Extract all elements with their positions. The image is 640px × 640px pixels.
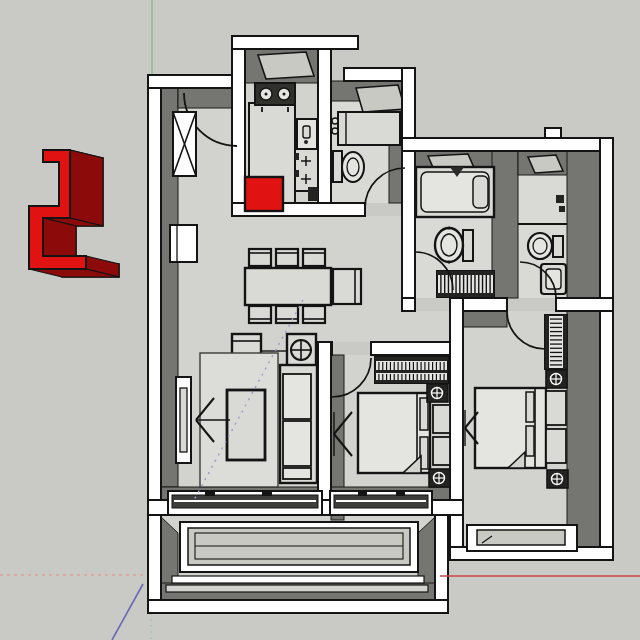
walls-part (435, 515, 448, 613)
master-nightstands-part (433, 405, 450, 433)
smallbath-washer[interactable] (332, 112, 400, 145)
dining-set-part (249, 306, 271, 323)
rightbed-closet-part (563, 315, 567, 369)
tv-living-part (180, 388, 187, 452)
sliding-door-master-part (396, 491, 405, 496)
walls-part (148, 75, 245, 88)
walls-part (402, 151, 415, 311)
smallbath-toilet-part (342, 152, 364, 182)
smallbath-washer-part (332, 128, 338, 134)
dining-set-part (276, 306, 298, 323)
rightbed-nightstands-part (546, 391, 566, 425)
walls-part (148, 600, 448, 613)
bath2-radiator[interactable] (437, 271, 494, 297)
bath2-toilet-part (435, 228, 463, 262)
kitchen-sink-part (304, 140, 308, 144)
smallbath-washer-part (332, 118, 338, 124)
kitchen-sink-part (303, 126, 310, 138)
bath2-tub-part (473, 176, 488, 208)
rightbath-shelf-part (559, 206, 565, 212)
rightbath-toilet[interactable] (528, 233, 563, 259)
wall-inner-faces-part (492, 151, 518, 298)
balcony-window[interactable] (180, 522, 418, 572)
coffee-table-part (227, 390, 265, 460)
kitchen-hob[interactable] (295, 149, 318, 191)
sofa-part (283, 468, 311, 479)
sofa-part (283, 374, 311, 419)
wall-inner-faces-part (463, 311, 507, 327)
rightbed-nightstands-part (546, 429, 566, 463)
kitchen-stove-part (283, 93, 286, 96)
rightbath-sink[interactable] (541, 264, 566, 294)
kitchen-bin[interactable] (308, 187, 318, 201)
app-canvas[interactable] (0, 0, 640, 640)
master-wardrobe-part (375, 357, 448, 361)
dining-set-part (276, 249, 298, 266)
rightbed-bed-part (526, 426, 534, 456)
rightbed-bay-window[interactable] (467, 525, 577, 551)
walls-part (600, 138, 613, 560)
kitchen-hob-part (295, 153, 299, 160)
kitchen-red-box-part (245, 177, 283, 211)
master-wardrobe-part (375, 380, 448, 383)
rightbath-shelf-part (556, 195, 564, 203)
bath2-tub[interactable] (416, 167, 494, 217)
smallbath-toilet-part (333, 151, 342, 182)
sliding-door-living-part (205, 491, 215, 496)
master-wardrobe-part (375, 370, 448, 373)
bath2-toilet[interactable] (435, 226, 473, 263)
bath2-toilet-part (447, 226, 450, 229)
rightbed-closet[interactable] (545, 315, 567, 369)
balcony-sill-part (166, 585, 428, 592)
walls-part (232, 36, 245, 216)
kitchen-red-box[interactable] (245, 177, 283, 211)
walls-part (556, 298, 613, 311)
rightbed-bed[interactable] (475, 388, 546, 468)
kitchen-hob-part (295, 170, 299, 177)
master-bed[interactable] (358, 393, 430, 473)
smallbath-toilet[interactable] (333, 151, 364, 182)
entry-cabinet[interactable] (170, 225, 197, 262)
high-windows-part (528, 155, 563, 173)
rightbath-toilet-part (528, 233, 552, 259)
dining-set-part (333, 269, 361, 304)
red-3d-component-part (70, 150, 103, 226)
bath2-radiator-part (437, 293, 494, 297)
dining-set-part (303, 306, 325, 323)
high-windows-part (258, 52, 314, 79)
balcony-sill-part (172, 576, 424, 583)
model-viewport[interactable] (0, 0, 640, 640)
walls-part (318, 49, 331, 216)
kitchen-stove-part (265, 93, 268, 96)
kitchen-sink[interactable] (297, 119, 317, 149)
bath2-toilet-part (463, 230, 473, 261)
rightbath-toilet-part (553, 236, 563, 257)
sliding-door-master[interactable] (330, 491, 432, 515)
coffee-table[interactable] (227, 390, 265, 460)
sofa[interactable] (280, 365, 317, 483)
kitchen-bin-part (308, 187, 318, 201)
sofa-part (283, 421, 311, 466)
sliding-door-living[interactable] (168, 491, 322, 515)
high-windows-part (356, 85, 405, 112)
entry-cabinet-x[interactable] (173, 112, 196, 176)
dining-set-part (249, 249, 271, 266)
rightbed-closet-part (545, 315, 549, 369)
dining-set-part (245, 268, 331, 305)
master-nightstands-part (433, 437, 450, 465)
smallbath-washer-part (338, 112, 400, 145)
sliding-door-master-part (358, 491, 367, 496)
wall-inner-faces-part (567, 311, 600, 547)
bath2-toilet-part (447, 260, 450, 263)
walls-part (318, 342, 331, 515)
walls-part (402, 138, 613, 151)
walls-part (232, 36, 358, 49)
wall-inner-faces-part (567, 151, 600, 298)
master-wardrobe[interactable] (375, 357, 448, 383)
entry-cabinet-part (170, 225, 197, 262)
walls-part (402, 298, 415, 311)
rightbed-nightstands[interactable] (546, 370, 568, 488)
dining-set-part (303, 249, 325, 266)
rightbed-bed-part (526, 392, 534, 422)
walls-part (450, 298, 463, 560)
sliding-door-living-part (262, 491, 272, 496)
walls-part (148, 75, 161, 612)
bath2-radiator-part (437, 271, 494, 275)
